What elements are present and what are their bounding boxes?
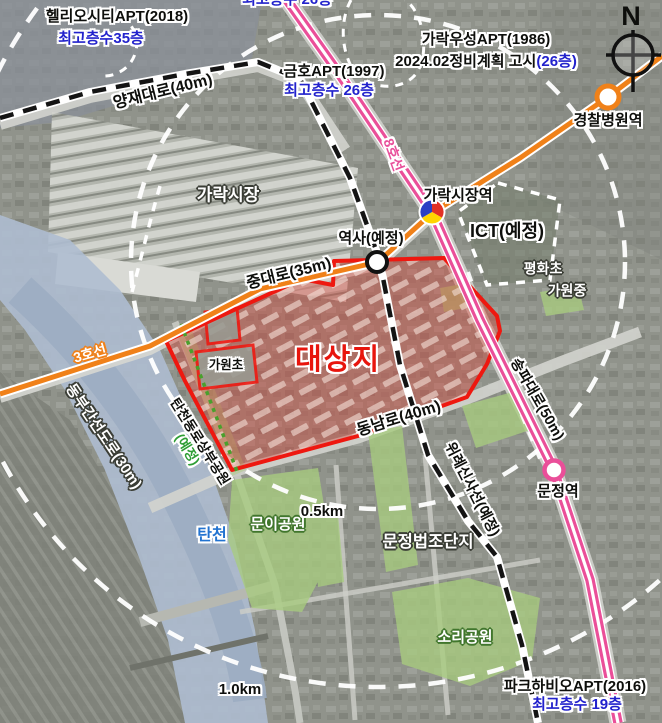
label-kumho-floors: 최고층수 26층 — [284, 83, 374, 100]
label-munjeong-beopjo: 문정법조단지 — [382, 533, 473, 551]
label-pyeonghwa-elementary: 평화초 — [524, 261, 563, 276]
label-woosung-name: 가락우성APT(1986) — [422, 32, 551, 49]
label-sori-park: 소리공원 — [437, 630, 492, 647]
woosung-floors-text: (26층) — [536, 53, 576, 70]
label-station-planned: 역사(예정) — [338, 231, 403, 248]
label-police-hospital-station: 경찰병원역 — [573, 113, 642, 130]
label-gawon-middle: 가원중 — [548, 283, 587, 298]
label-parkhabio-name: 파크하비오APT(2016) — [504, 679, 646, 696]
label-helios-name: 헬리오시티APT(2018) — [46, 9, 188, 26]
label-top-cutoff-floors: 최고층수 26층 — [242, 0, 332, 8]
planned-station-marker — [367, 252, 387, 272]
label-muni-park: 문이공원 — [250, 517, 305, 534]
planning-map: 최고층수 26층 헬리오시티APT(2018) 최고층수35층 양재대로(40m… — [0, 0, 662, 723]
label-kumho-name: 금호APT(1997) — [284, 64, 385, 81]
label-tancheon-river: 탄천 — [197, 527, 226, 545]
compass-n-label: N — [621, 2, 641, 32]
label-target-site: 대상지 — [295, 345, 381, 377]
label-radius-10km: 1.0km — [219, 682, 262, 699]
munjeong-station-marker — [545, 461, 564, 480]
label-munjeong-station: 문정역 — [537, 484, 578, 501]
label-garak-market-station: 가락시장역 — [423, 188, 492, 205]
label-ict-planned: ICT(예정) — [470, 222, 544, 242]
label-radius-05km: 0.5km — [301, 504, 344, 521]
label-helios-floors: 최고층수35층 — [58, 31, 144, 48]
label-woosung-notice: 2024.02정비계획 고시(26층) — [395, 54, 577, 71]
woosung-notice-text: 2024.02정비계획 고시 — [395, 53, 536, 70]
label-parkhabio-floors: 최고층수 19층 — [532, 697, 622, 714]
label-gawon-elementary: 가원초 — [209, 359, 244, 373]
police-hospital-station-marker — [597, 86, 619, 108]
label-garak-market: 가락시장 — [197, 187, 260, 206]
